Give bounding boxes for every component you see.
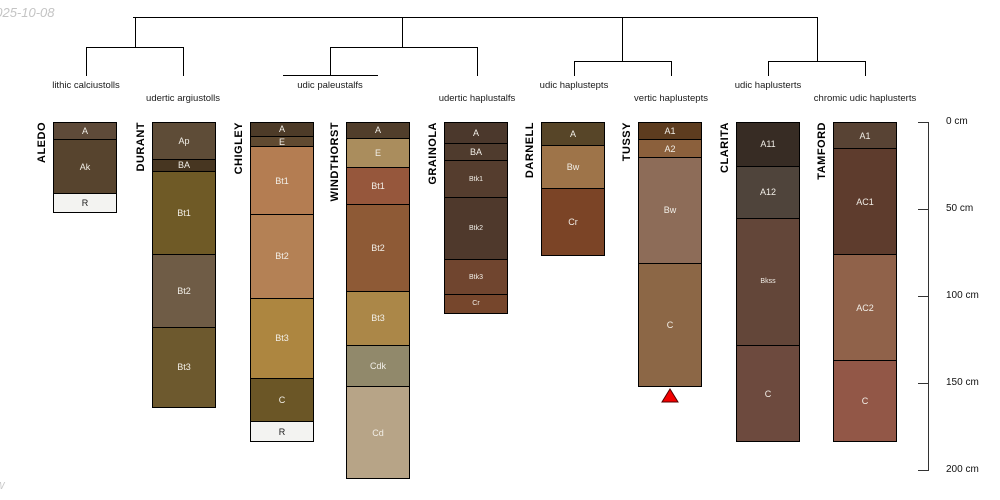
dendrogram-segment <box>477 47 478 76</box>
soil-profile-dendrogram-chart: lithic calciustollsudertic argiustollsud… <box>0 0 1000 500</box>
bottom-truncation-marker <box>661 388 679 408</box>
dendrogram-segment <box>135 17 136 47</box>
depth-tick <box>918 470 928 471</box>
horizon-label: C <box>667 320 674 330</box>
horizon-label: Bt2 <box>177 286 191 296</box>
depth-axis-line <box>928 122 929 471</box>
horizon-tussy-bw: Bw <box>639 158 701 264</box>
horizon-label: A <box>375 125 381 135</box>
dendrogram-segment <box>768 61 769 76</box>
horizon-windthorst-bt3: Bt3 <box>347 292 409 346</box>
dendrogram-segment <box>768 61 865 62</box>
dendrogram-segment <box>86 47 87 76</box>
horizon-clarita-a12: A12 <box>737 167 799 219</box>
horizon-label: C <box>862 396 869 406</box>
profile-clarita: A11A12BkssC <box>736 122 800 442</box>
horizon-label: AC1 <box>856 197 874 207</box>
horizon-windthorst-cdk: Cdk <box>347 346 409 388</box>
horizon-label: Bt1 <box>177 208 191 218</box>
horizon-windthorst-cd: Cd <box>347 387 409 477</box>
dendrogram-segment <box>402 17 403 47</box>
horizon-tussy-a2: A2 <box>639 140 701 157</box>
horizon-darnell-a: A <box>542 123 604 146</box>
horizon-label: A <box>570 129 576 139</box>
horizon-grainola-ba: BA <box>445 144 507 161</box>
horizon-tamford-ac2: AC2 <box>834 255 896 361</box>
horizon-tamford-a1: A1 <box>834 123 896 149</box>
horizon-durant-bt1: Bt1 <box>153 172 215 256</box>
dendrogram-segment <box>330 47 331 75</box>
horizon-label: A1 <box>664 126 675 136</box>
horizon-label: Btk1 <box>469 176 483 183</box>
profile-durant: ApBABt1Bt2Bt3 <box>152 122 216 408</box>
horizon-tussy-a1: A1 <box>639 123 701 140</box>
depth-tick <box>918 209 928 210</box>
horizon-clarita-bkss: Bkss <box>737 219 799 346</box>
profile-name-label: DARNELL <box>524 122 536 178</box>
horizon-label: C <box>279 395 286 405</box>
dendrogram-segment <box>330 47 477 48</box>
horizon-label: Cr <box>472 300 479 307</box>
dendrogram-segment <box>133 17 817 18</box>
horizon-label: A2 <box>664 144 675 154</box>
taxon-label: udic haplusterts <box>735 80 802 91</box>
horizon-label: Ap <box>178 136 189 146</box>
profile-tamford: A1AC1AC2C <box>833 122 897 442</box>
taxon-label: udertic haplustalfs <box>439 93 516 104</box>
horizon-darnell-cr: Cr <box>542 189 604 255</box>
horizon-label: Bt3 <box>177 362 191 372</box>
horizon-label: AC2 <box>856 303 874 313</box>
date-stamp: 2025-10-08 <box>0 5 55 20</box>
horizon-aledo-a: A <box>54 123 116 140</box>
horizon-label: Bt3 <box>371 313 385 323</box>
horizon-label: Btk2 <box>469 225 483 232</box>
horizon-clarita-a11: A11 <box>737 123 799 167</box>
horizon-durant-ap: Ap <box>153 123 215 160</box>
horizon-label: Bt3 <box>275 333 289 343</box>
horizon-windthorst-bt1: Bt1 <box>347 168 409 205</box>
horizon-label: Cd <box>372 428 384 438</box>
horizon-label: Btk3 <box>469 274 483 281</box>
horizon-grainola-btk3: Btk3 <box>445 260 507 295</box>
dendrogram-segment <box>574 61 575 76</box>
triangle-up-icon <box>661 388 679 403</box>
horizon-label: BA <box>178 160 190 170</box>
horizon-label: Bt1 <box>275 176 289 186</box>
profile-name-label: DURANT <box>135 122 147 171</box>
horizon-chigley-c: C <box>251 379 313 423</box>
depth-tick <box>918 122 928 123</box>
depth-tick-label: 0 cm <box>946 116 968 127</box>
horizon-grainola-btk1: Btk1 <box>445 161 507 198</box>
horizon-windthorst-bt2: Bt2 <box>347 205 409 292</box>
dendrogram-segment <box>671 61 672 76</box>
dendrogram-segment <box>865 61 866 76</box>
taxon-label: udic paleustalfs <box>297 80 362 91</box>
horizon-label: C <box>765 389 772 399</box>
horizon-tussy-c: C <box>639 264 701 386</box>
profile-tussy: A1A2BwC <box>638 122 702 387</box>
taxon-label: lithic calciustolls <box>52 80 120 91</box>
horizon-label: A <box>279 124 285 134</box>
horizon-tamford-ac1: AC1 <box>834 149 896 255</box>
depth-tick-label: 200 cm <box>946 464 979 475</box>
dendrogram-segment <box>283 75 378 76</box>
dendrogram-segment <box>183 47 184 76</box>
horizon-label: Bt2 <box>371 243 385 253</box>
horizon-label: Cdk <box>370 361 386 371</box>
horizon-chigley-bt3: Bt3 <box>251 299 313 379</box>
profile-name-label: WINDTHORST <box>329 122 341 202</box>
horizon-label: A <box>473 128 479 138</box>
horizon-grainola-btk2: Btk2 <box>445 198 507 261</box>
horizon-chigley-r: R <box>251 422 313 441</box>
horizon-label: Bt2 <box>275 251 289 261</box>
depth-tick <box>918 383 928 384</box>
horizon-label: Cr <box>568 217 578 227</box>
dendrogram-segment <box>817 17 818 61</box>
profile-windthorst: AEBt1Bt2Bt3CdkCd <box>346 122 410 479</box>
horizon-label: Bkss <box>760 278 775 285</box>
horizon-label: BA <box>470 147 482 157</box>
horizon-windthorst-a: A <box>347 123 409 139</box>
horizon-label: A <box>82 126 88 136</box>
profile-name-label: CLARITA <box>719 122 731 173</box>
horizon-grainola-cr: Cr <box>445 295 507 312</box>
horizon-label: Bw <box>567 162 580 172</box>
horizon-darnell-bw: Bw <box>542 146 604 190</box>
profile-name-label: GRAINOLA <box>427 122 439 185</box>
horizon-label: E <box>279 137 285 147</box>
horizon-label: A1 <box>859 131 870 141</box>
horizon-label: Ak <box>80 162 91 172</box>
horizon-label: A11 <box>760 139 775 149</box>
profile-aledo: AAkR <box>53 122 117 213</box>
horizon-clarita-c: C <box>737 346 799 442</box>
horizon-grainola-a: A <box>445 123 507 144</box>
depth-tick-label: 150 cm <box>946 377 979 388</box>
horizon-chigley-e: E <box>251 137 313 147</box>
profile-name-label: TUSSY <box>621 122 633 161</box>
horizon-aledo-r: R <box>54 194 116 211</box>
profile-darnell: ABwCr <box>541 122 605 256</box>
depth-tick <box>918 296 928 297</box>
horizon-label: Bt1 <box>371 181 385 191</box>
horizon-aledo-ak: Ak <box>54 140 116 194</box>
horizon-label: R <box>82 198 89 208</box>
profile-name-label: CHIGLEY <box>233 122 245 174</box>
taxon-label: vertic haplustepts <box>634 93 708 104</box>
depth-tick-label: 100 cm <box>946 290 979 301</box>
horizon-windthorst-e: E <box>347 139 409 169</box>
profile-chigley: AEBt1Bt2Bt3CR <box>250 122 314 442</box>
horizon-tamford-c: C <box>834 361 896 441</box>
taxon-label: chromic udic haplusterts <box>814 93 916 104</box>
dendrogram-segment <box>574 61 671 62</box>
profile-name-label: TAMFORD <box>816 122 828 180</box>
taxon-label: udertic argiustolls <box>146 93 220 104</box>
dendrogram-segment <box>622 17 623 61</box>
horizon-chigley-bt2: Bt2 <box>251 215 313 299</box>
horizon-chigley-a: A <box>251 123 313 137</box>
profile-grainola: ABABtk1Btk2Btk3Cr <box>444 122 508 314</box>
horizon-durant-bt2: Bt2 <box>153 255 215 328</box>
horizon-label: R <box>279 427 286 437</box>
dendrogram-segment <box>86 47 183 48</box>
taxon-label: udic haplustepts <box>540 80 609 91</box>
watermark-fragment: W <box>0 481 4 492</box>
horizon-durant-bt3: Bt3 <box>153 328 215 406</box>
horizon-label: Bw <box>664 205 677 215</box>
horizon-chigley-bt1: Bt1 <box>251 147 313 215</box>
horizon-label: A12 <box>760 187 776 197</box>
horizon-label: E <box>375 148 381 158</box>
depth-tick-label: 50 cm <box>946 203 973 214</box>
horizon-durant-ba: BA <box>153 160 215 172</box>
profile-name-label: ALEDO <box>36 122 48 163</box>
